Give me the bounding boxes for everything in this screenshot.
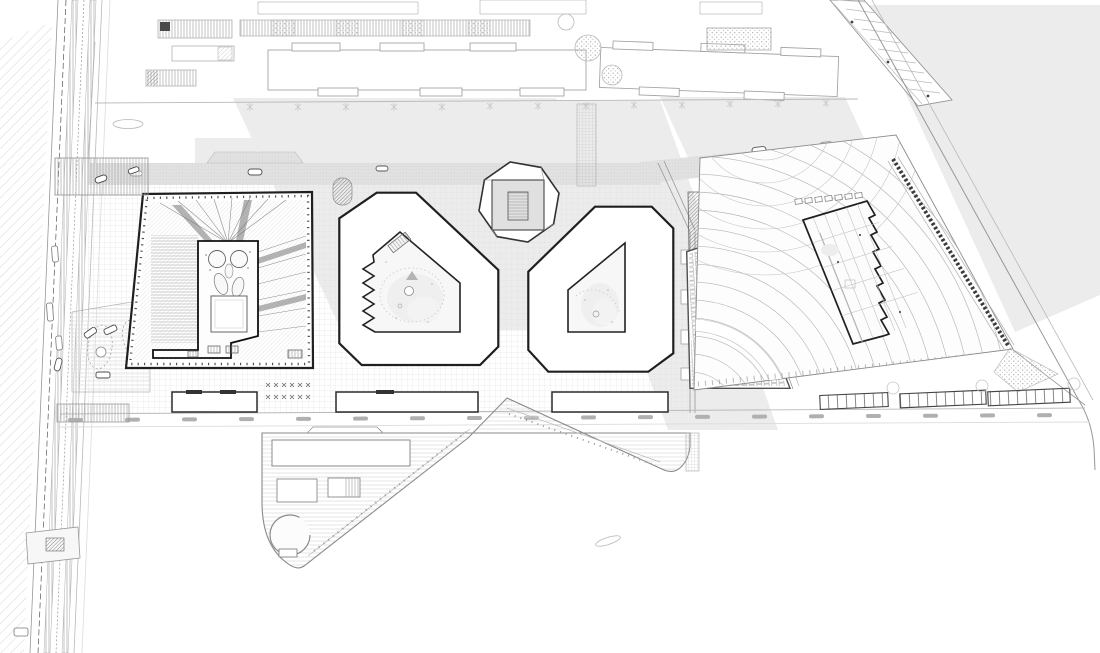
pavilion-core [508,192,528,220]
dotted-triangle [994,348,1058,392]
roof-outline [480,0,586,14]
deck-edge-bump [307,427,383,433]
deck-striped-box [328,478,360,497]
crosswalk-deck [686,433,699,471]
planting-island [595,534,622,549]
bus-canopies [172,392,668,412]
housing-slab-west [268,43,586,96]
courtyard-pavilion [707,28,771,50]
courtyard-plaza-square [211,296,247,332]
outbuildings-west [146,20,234,86]
pedestrian-bridge-west [57,404,129,422]
crosswalk-north [577,104,596,186]
pedestrian-bridge-north [55,158,148,195]
platform-structure [46,538,64,551]
west-wing-floor [151,235,198,343]
market-stall-rows [820,378,1080,409]
building-square-courtyard [126,192,313,368]
roof-outline [700,2,762,14]
kiosk-bench [279,549,297,557]
deck-service-box [277,479,317,502]
hatched-island [333,178,352,205]
site-plan-canvas [0,0,1100,653]
road-dashes [70,415,1080,420]
pond [113,120,143,129]
pier-deck [262,398,699,568]
deck-hall [272,440,410,466]
site-plan-drawing [0,0,1100,653]
roof-outline [258,2,418,14]
deck-surface [262,398,690,568]
